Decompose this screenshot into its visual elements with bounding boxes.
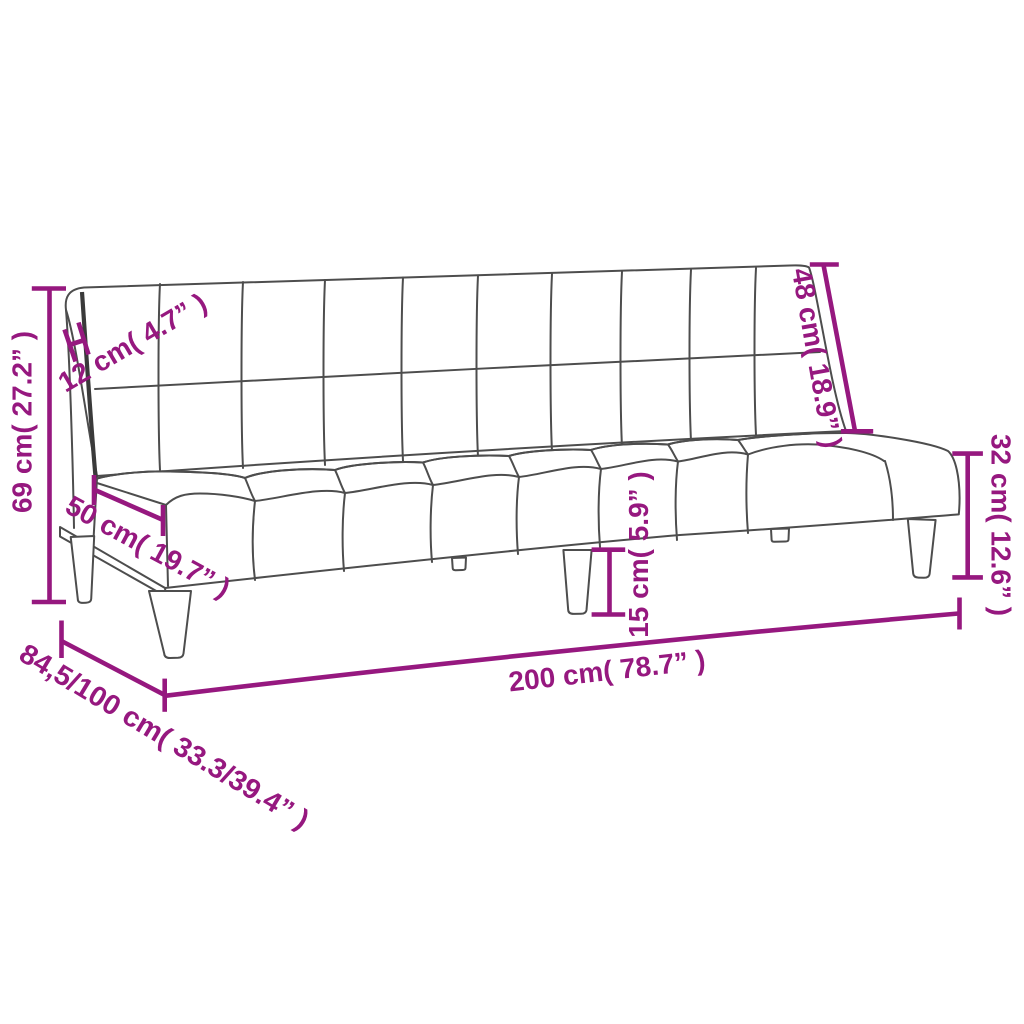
svg-text:69 cm( 27.2” ): 69 cm( 27.2” ) bbox=[7, 331, 38, 513]
svg-text:15 cm( 5.9” ): 15 cm( 5.9” ) bbox=[623, 471, 654, 638]
svg-text:32 cm( 12.6” ): 32 cm( 12.6” ) bbox=[986, 434, 1017, 616]
